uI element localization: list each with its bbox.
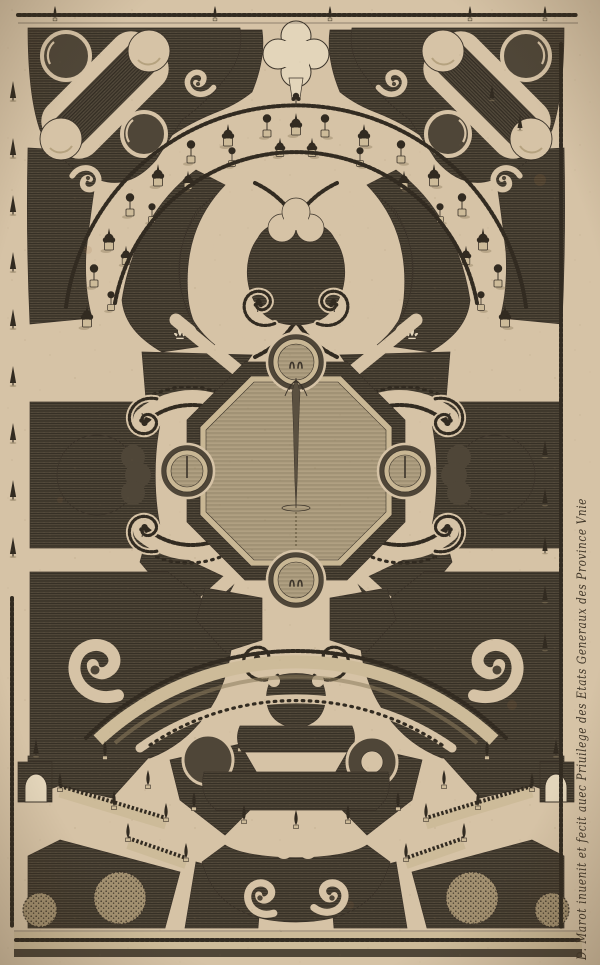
foxing-spot [346,901,354,909]
foxing-spot [534,174,546,186]
foxing-spot [507,700,517,710]
paper-texture-overlay [0,0,600,965]
foxing-spot [84,246,92,254]
foxing-spot [57,497,63,503]
engraving-garden-parterre-plan: D. Marot inuenit et fecit auec Priuilege… [0,0,600,965]
engraving-canvas: D. Marot inuenit et fecit auec Priuilege… [0,0,600,965]
